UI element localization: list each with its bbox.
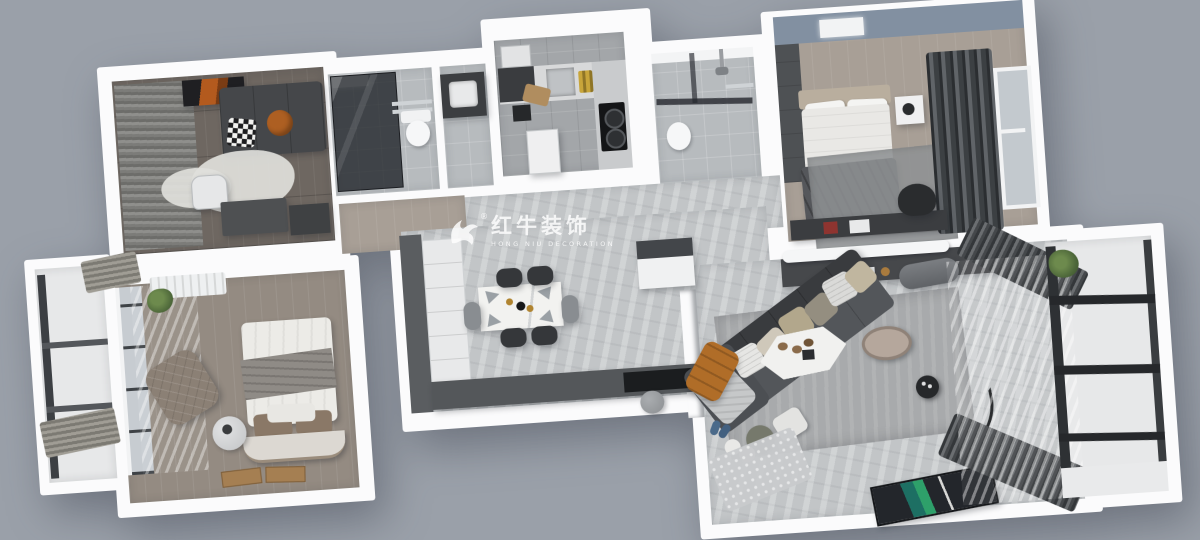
- balcony2-frame-bar-2: [1054, 364, 1160, 375]
- bath1-shower-enclosure: [330, 72, 404, 192]
- hongniu-watermark: ® 红牛装饰 HONG NIU DECORATION: [446, 215, 615, 251]
- dining-chair-right-end: [561, 295, 580, 324]
- study-cabinet: [289, 203, 331, 236]
- kitchen-fridge: [526, 129, 561, 175]
- bath2-shower-head: [715, 67, 729, 76]
- bedroom2-curtains: [926, 48, 1005, 234]
- study-checkered-pillow: [226, 118, 256, 148]
- hongniu-logo-wrap: ®: [446, 215, 486, 251]
- apartment-render-canvas: ® 红牛装饰 HONG NIU DECORATION: [0, 0, 1200, 540]
- bedroom1-tray-2: [265, 466, 305, 483]
- dining-chair-top-1: [496, 267, 523, 288]
- bedroom1-pillow-white: [267, 403, 316, 423]
- kitchen-appliance: [500, 44, 531, 68]
- registered-mark: ®: [480, 212, 488, 221]
- bedroom2-light-panel: [819, 17, 864, 38]
- kitchen-coffee-machine: [512, 104, 531, 121]
- dining-chair-bottom-1: [500, 327, 527, 348]
- floorplan: [0, 0, 1200, 540]
- kitchen-bottles: [578, 70, 594, 93]
- bedroom2-desk-laptop: [849, 219, 870, 233]
- dining-chair-bottom-2: [531, 325, 558, 346]
- dining-chair-top-2: [527, 265, 554, 286]
- vanity-sink: [449, 80, 479, 108]
- watermark-subtitle: HONG NIU DECORATION: [491, 240, 615, 248]
- coffee-table-decor-tray: [802, 349, 815, 360]
- watermark-text: 红牛装饰 HONG NIU DECORATION: [491, 215, 615, 248]
- watermark-title: 红牛装饰: [491, 215, 615, 238]
- bedroom2-chair: [897, 182, 937, 217]
- balcony2-frame-bar-1: [1049, 294, 1155, 305]
- study-desk: [220, 198, 288, 237]
- dining-chair-left-end: [463, 301, 482, 330]
- bath2-floor: [651, 47, 762, 184]
